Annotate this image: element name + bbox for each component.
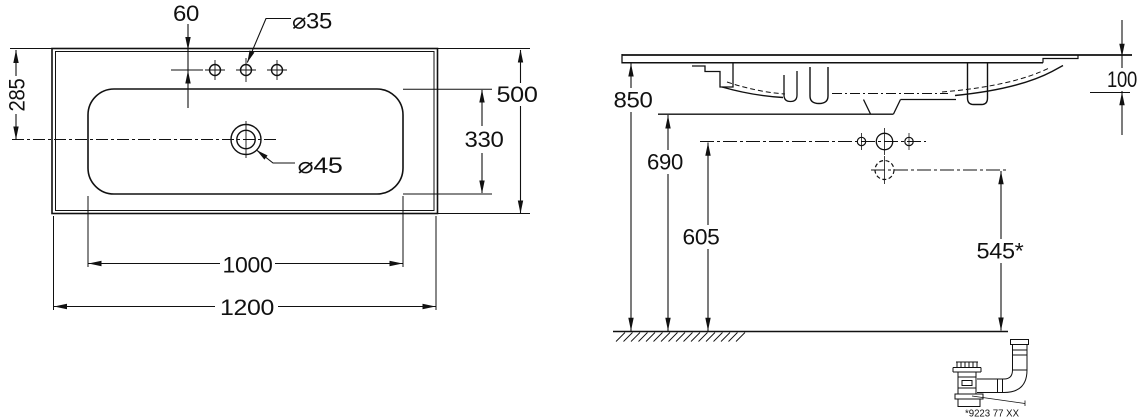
technical-drawing-canvas: 60 ⌀35 285 500 330 [0,0,1140,420]
hole-pattern [700,128,1007,184]
side-view: 850 690 605 545* 100 [613,20,1137,420]
dimension-100: 100 [1090,20,1137,135]
label-1200: 1200 [220,295,274,320]
arrow-up [628,64,633,77]
drain-hole [231,121,261,158]
arrow-down [705,318,710,331]
arrow-down [518,201,523,214]
top-view: 60 ⌀35 285 500 330 [5,1,538,320]
dimension-330: 330 [403,89,504,194]
arrow-left [54,304,67,309]
label-605: 605 [683,225,720,250]
bowl-curve-right-solid [955,66,1063,96]
overflow-channel [784,71,797,102]
leader-d35: ⌀35 [247,9,332,63]
arrow-right [390,261,403,266]
label-d35: ⌀35 [292,9,332,34]
leader-d45: ⌀45 [257,150,343,178]
part-number-label: *9223 77 XX [965,408,1019,420]
label-60: 60 [173,1,199,26]
arrow-right [423,304,436,309]
dimension-690: 690 [647,115,683,331]
label-500: 500 [497,82,538,107]
drain-standpipe [810,67,828,104]
arrow-left [89,261,102,266]
arrow-down [998,318,1003,331]
washbasin-dimension-drawing: 60 ⌀35 285 500 330 [0,0,1140,420]
dimension-285: 285 [5,50,30,140]
drain-boss [864,100,957,115]
arrow-up [479,90,484,103]
dimension-60: 60 [173,1,199,108]
label-690: 690 [647,150,683,175]
arrow-up [185,71,190,84]
leader-line-d35 [247,19,291,63]
siphon-detail: *9223 77 XX [920,336,1029,420]
rim-front-step [1043,55,1078,63]
label-100: 100 [1107,67,1137,92]
arrow-down [665,318,670,331]
dimension-545: 545* [977,171,1025,331]
arrow-up [13,50,18,63]
leader-arrow-d45 [257,150,268,160]
label-d45: ⌀45 [298,153,343,178]
basin-bowl-outline [88,89,403,194]
pipe-top-cap [1011,340,1029,345]
arrow-down [628,318,633,331]
bowl-curve-left-solid [722,87,783,98]
floor-hatching [616,333,745,342]
pipe-vertical [1013,345,1028,371]
label-1000: 1000 [223,253,273,278]
label-330: 330 [465,127,504,152]
bowl-curve-left-hidden [727,82,785,94]
leader-arrow-d35 [247,50,254,62]
label-850: 850 [614,88,653,113]
dimension-1000: 1000 [88,196,403,278]
arrow-up [998,171,1003,184]
arrow-up [665,116,670,129]
pipe-rings [1013,350,1028,355]
mounting-bracket-left [692,64,733,88]
label-545: 545* [977,239,1025,264]
mounting-bracket-right [968,64,988,105]
arrow-down [13,127,18,140]
arrow-up [705,143,710,156]
dimension-605: 605 [683,143,720,332]
arrow-down [479,181,484,194]
arrow-up [1119,92,1124,105]
label-285: 285 [5,78,30,111]
dimension-850: 850 [614,64,653,332]
arrow-up [518,50,523,63]
